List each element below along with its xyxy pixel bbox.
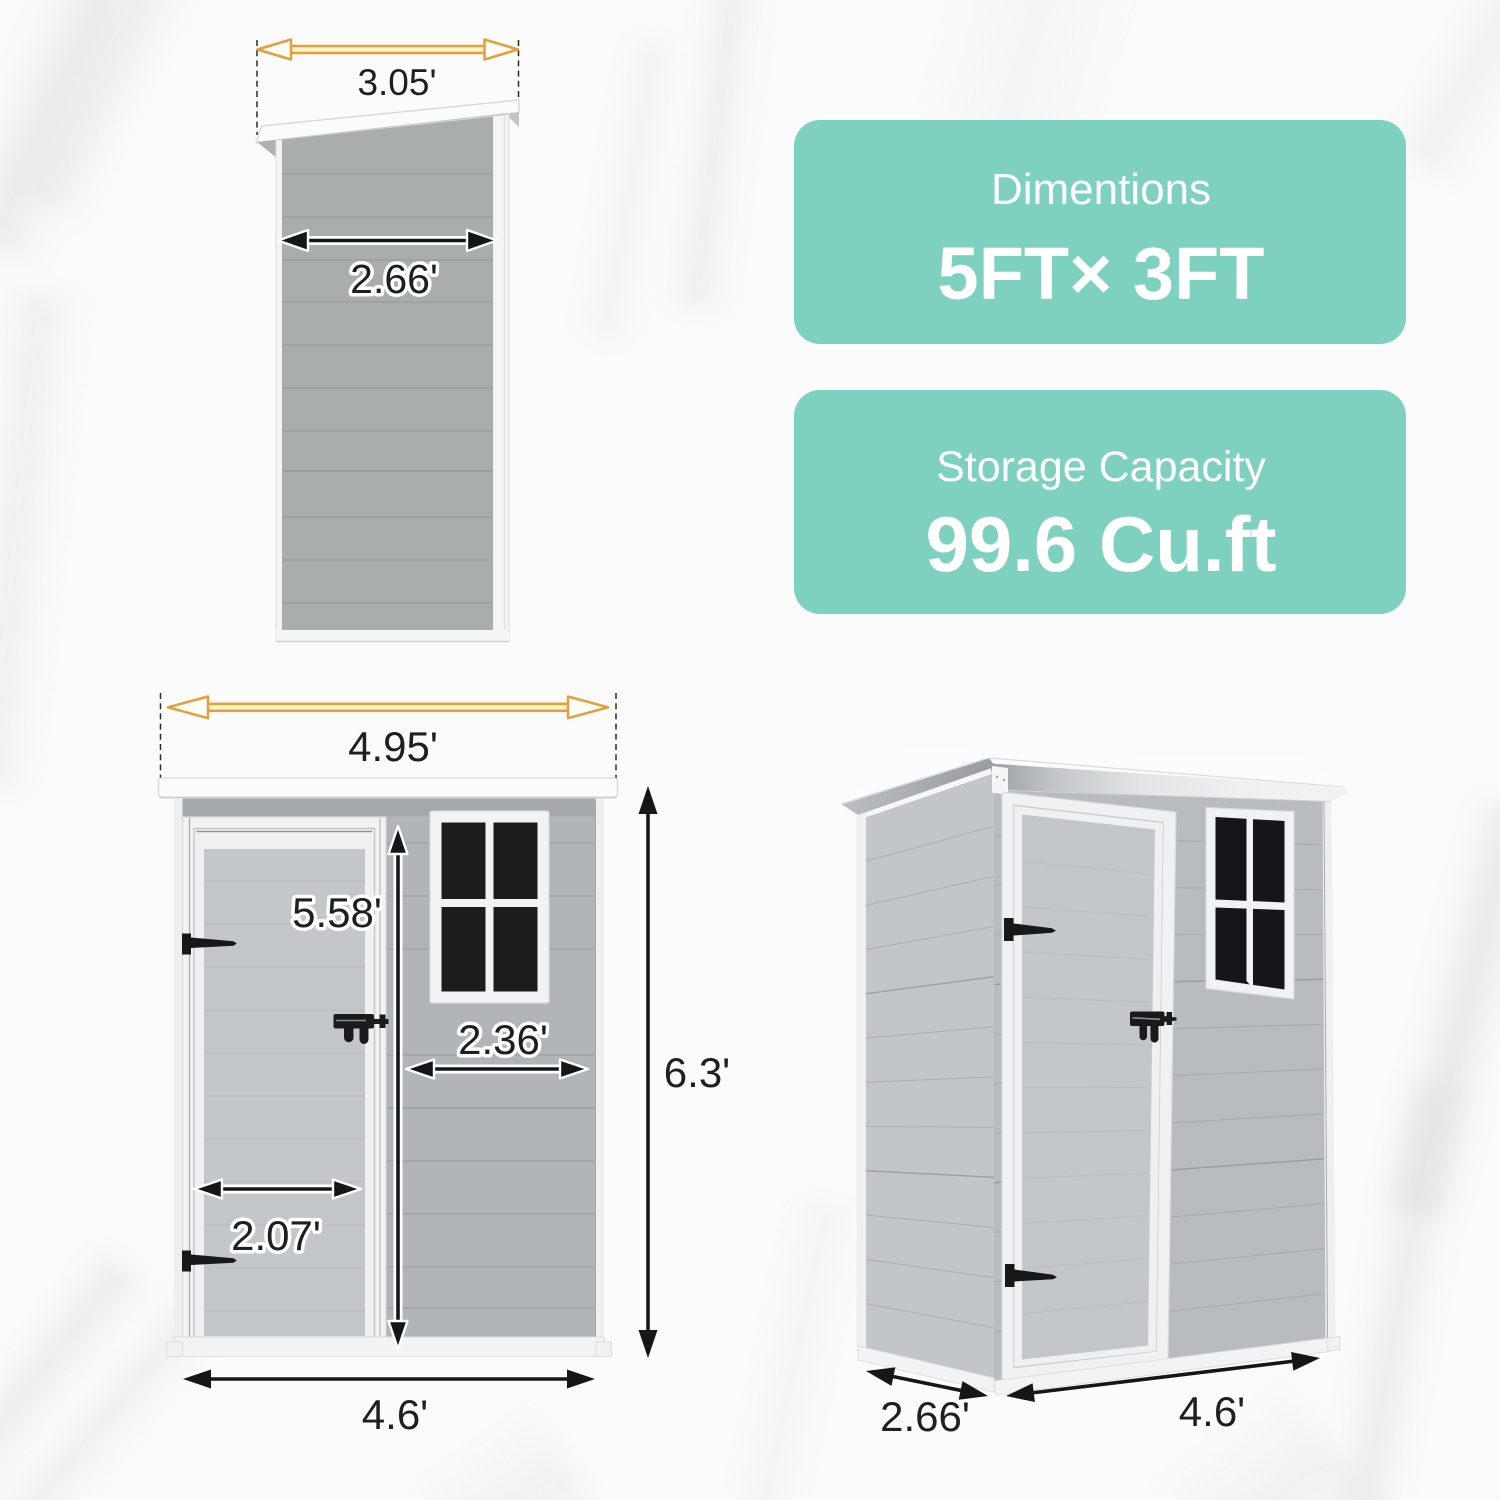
svg-text:5.58': 5.58'	[292, 889, 382, 936]
svg-text:Storage Capacity: Storage Capacity	[936, 443, 1266, 491]
svg-text:4.6': 4.6'	[1179, 1388, 1245, 1435]
svg-text:2.07': 2.07'	[231, 1212, 321, 1259]
svg-text:4.6': 4.6'	[362, 1391, 428, 1438]
svg-text:3.05': 3.05'	[357, 62, 436, 103]
svg-text:2.66': 2.66'	[880, 1393, 970, 1440]
svg-text:Dimentions: Dimentions	[991, 165, 1211, 214]
svg-text:6.3': 6.3'	[664, 1049, 730, 1096]
svg-text:2.66': 2.66'	[350, 256, 438, 302]
svg-text:99.6 Cu.ft: 99.6 Cu.ft	[925, 500, 1276, 588]
svg-text:4.95': 4.95'	[348, 723, 438, 770]
svg-text:5FT× 3FT: 5FT× 3FT	[938, 232, 1265, 315]
svg-text:2.36': 2.36'	[458, 1016, 548, 1063]
